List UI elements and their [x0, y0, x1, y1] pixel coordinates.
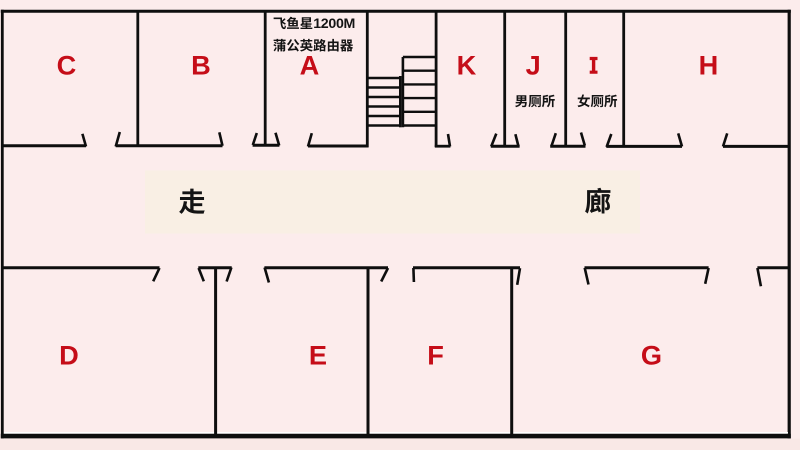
svg-text:F: F [427, 340, 444, 371]
svg-text:H: H [699, 50, 719, 81]
svg-text:E: E [309, 340, 327, 371]
svg-text:C: C [57, 50, 77, 81]
svg-text:G: G [641, 340, 662, 371]
svg-text:A: A [300, 50, 320, 81]
svg-text:1200M: 1200M [313, 16, 355, 32]
svg-text:B: B [191, 50, 211, 81]
svg-text:D: D [59, 340, 79, 371]
svg-text:K: K [457, 50, 477, 81]
svg-text:J: J [526, 50, 541, 81]
